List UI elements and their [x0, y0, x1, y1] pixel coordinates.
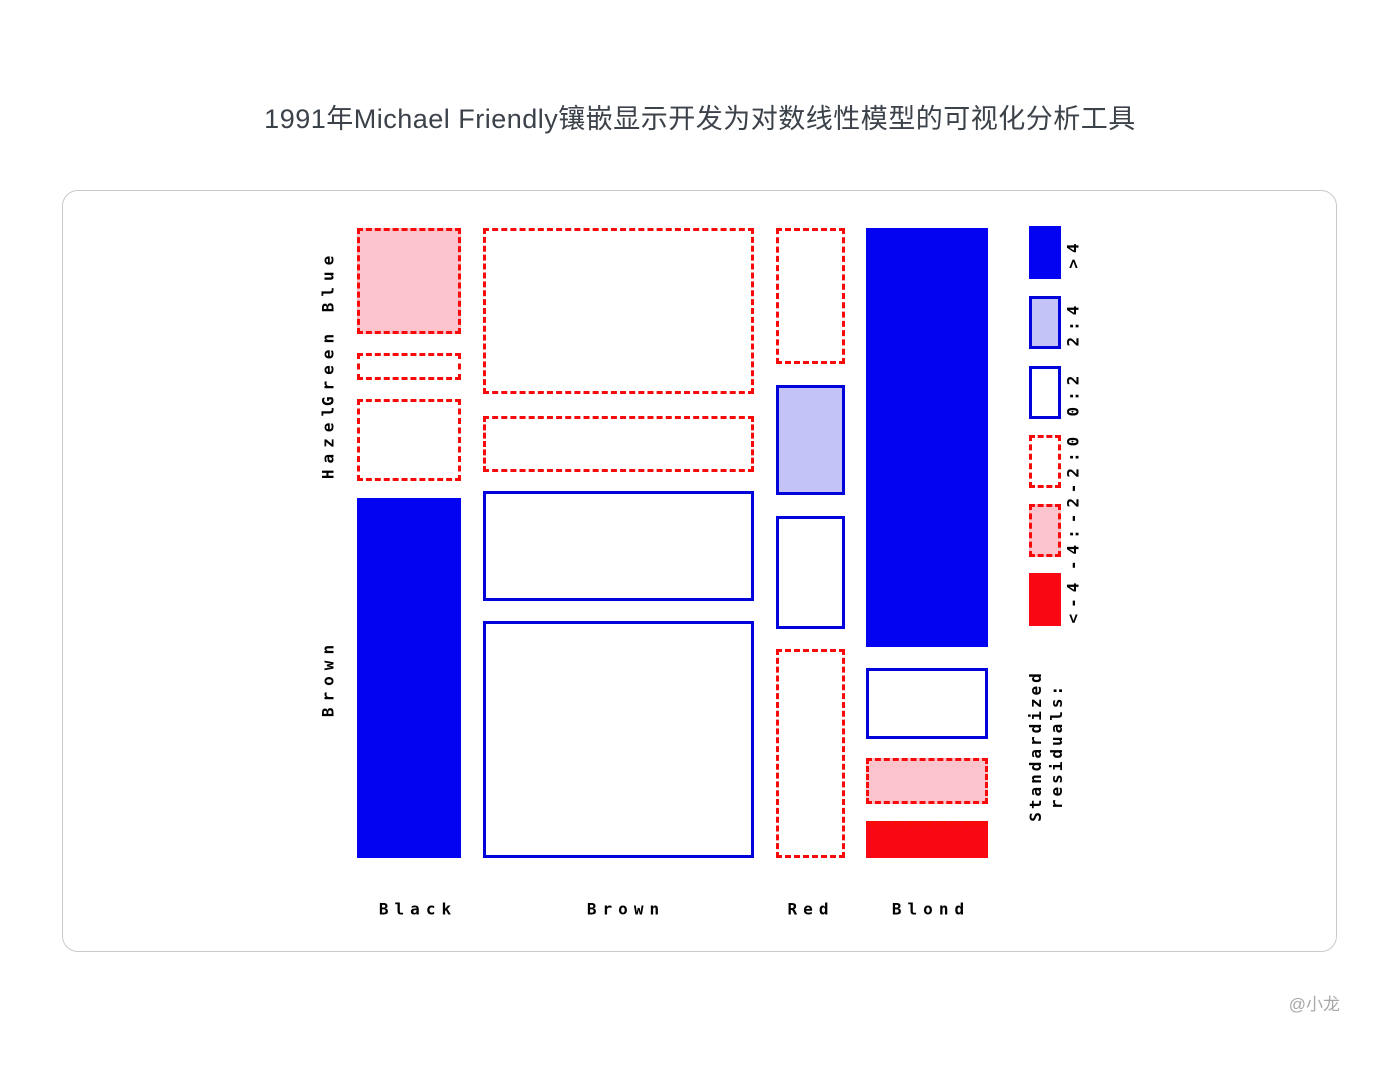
legend-swatch-2 — [1029, 366, 1061, 419]
tile-black-hazel — [357, 399, 461, 481]
tile-black-brown — [357, 498, 461, 858]
y-axis-label-blue: Blue — [319, 250, 338, 313]
legend-label-3: -2:0 — [1064, 430, 1083, 493]
mosaic-card: BlueGreenHazelBrown BlackBrownRedBlond >… — [62, 190, 1337, 952]
tile-brown-brown — [483, 621, 754, 858]
tile-black-green — [357, 353, 461, 380]
x-axis-label-red: Red — [788, 900, 835, 919]
legend-swatch-0 — [1029, 226, 1061, 279]
x-axis-label-blond: Blond — [892, 900, 970, 919]
y-axis-label-brown: Brown — [319, 639, 338, 717]
tile-red-hazel — [776, 516, 845, 629]
tile-brown-green — [483, 416, 754, 472]
page: 1991年Michael Friendly镶嵌显示开发为对数线性模型的可视化分析… — [0, 0, 1400, 1065]
legend-label-0: >4 — [1064, 237, 1083, 268]
tile-red-brown — [776, 649, 845, 858]
tile-brown-blue — [483, 228, 754, 394]
legend-label-4: -4:-2 — [1064, 491, 1083, 569]
watermark: @小龙 — [1289, 990, 1340, 1015]
y-axis-label-hazel: Hazel — [319, 401, 338, 479]
tile-blond-blue — [866, 228, 988, 647]
page-title: 1991年Michael Friendly镶嵌显示开发为对数线性模型的可视化分析… — [0, 101, 1400, 137]
tile-brown-hazel — [483, 491, 754, 601]
legend-swatch-5 — [1029, 573, 1061, 626]
x-axis-label-black: Black — [379, 900, 457, 919]
tile-blond-green — [866, 668, 988, 739]
legend-swatch-4 — [1029, 504, 1061, 557]
legend-swatch-1 — [1029, 296, 1061, 349]
tile-blond-hazel — [866, 758, 988, 804]
legend-title: Standardized residuals: — [1025, 670, 1067, 822]
mosaic-plot: BlueGreenHazelBrown BlackBrownRedBlond >… — [63, 191, 1336, 951]
x-axis-label-brown: Brown — [587, 900, 665, 919]
tile-blond-brown — [866, 821, 988, 858]
tile-black-blue — [357, 228, 461, 334]
legend-label-5: <-4 — [1064, 576, 1083, 623]
legend-label-2: 0:2 — [1064, 369, 1083, 416]
tile-red-blue — [776, 228, 845, 364]
tile-red-green — [776, 385, 845, 495]
y-axis-label-green: Green — [319, 328, 338, 406]
legend-label-1: 2:4 — [1064, 299, 1083, 346]
legend-swatch-3 — [1029, 435, 1061, 488]
